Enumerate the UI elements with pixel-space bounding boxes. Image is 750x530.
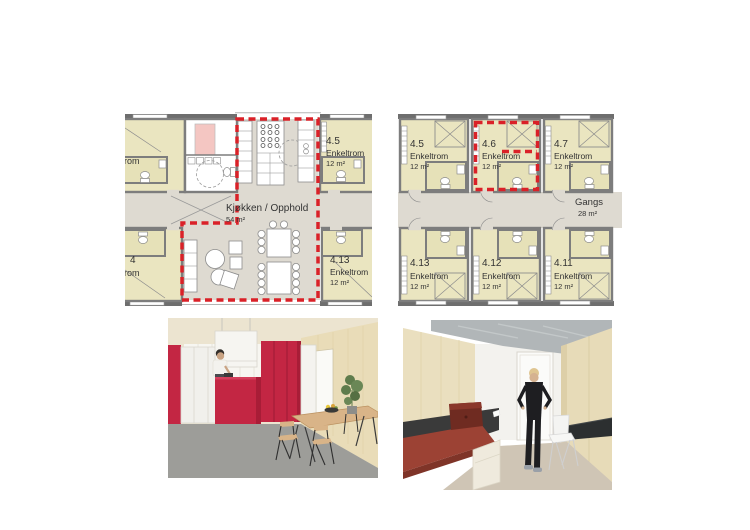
room-type: Enkeltrom <box>330 267 368 277</box>
shower-zone <box>195 124 215 155</box>
corridor-area: 28 m² <box>578 209 598 218</box>
coffee-table <box>206 250 225 269</box>
room-type: Enkeltrom <box>410 271 448 281</box>
rendering-bedroom <box>403 318 612 490</box>
room-type: Enkeltrom <box>410 151 448 161</box>
dining-table <box>267 229 291 257</box>
dining-table <box>267 262 291 294</box>
floor-plan-kitchen-level: Enkeltrom 4.5 Enkeltrom 12 m² Kjøkken / … <box>125 112 372 308</box>
red-cabinet-tall <box>261 341 301 422</box>
floor-plan-rooms-svg: 4.5 Enkeltrom 12 m² 4.6 Enkeltrom 12 m² … <box>398 112 625 308</box>
room-number: 4.5 <box>326 136 340 147</box>
room-area: 12 m² <box>410 282 430 291</box>
room-label-partial: Enkeltrom <box>125 268 140 278</box>
room-label-partial: Enkeltrom <box>125 156 140 166</box>
presentation-sheet: Enkeltrom 4.5 Enkeltrom 12 m² Kjøkken / … <box>0 0 750 530</box>
kitchen-fixtures <box>238 120 314 185</box>
room-type: Enkeltrom <box>482 151 520 161</box>
room-type: Enkeltrom <box>554 151 592 161</box>
room-area: 12 m² <box>482 282 502 291</box>
room-type: Enkeltrom <box>554 271 592 281</box>
room-type: Enkeltrom <box>482 271 520 281</box>
floor-plan-rooms-level: 4.5 Enkeltrom 12 m² 4.6 Enkeltrom 12 m² … <box>398 112 625 308</box>
armchair <box>229 241 242 254</box>
fridge <box>301 345 316 422</box>
red-cabinet-left <box>168 345 181 424</box>
room-area: 12 m² <box>330 278 350 287</box>
room-number: 4.5 <box>410 139 424 150</box>
room-number: 4.11 <box>554 258 573 269</box>
room-number: 4.13 <box>330 255 350 266</box>
room-number: 4.13 <box>410 258 430 269</box>
common-room-label: Kjøkken / Opphold <box>226 203 308 214</box>
rooms-bottom-row <box>400 218 612 305</box>
common-room-area: 54 m² <box>226 215 246 224</box>
room-area: 12 m² <box>410 162 430 171</box>
room-type: Enkeltrom <box>326 148 364 158</box>
corridor-label: Gangs <box>575 197 603 208</box>
room-area: 12 m² <box>554 162 574 171</box>
room-number: 4.6 <box>482 139 496 150</box>
room-number: 4.12 <box>482 258 502 269</box>
accessible-bathroom <box>185 119 237 192</box>
floor-plan-kitchen-svg: Enkeltrom 4.5 Enkeltrom 12 m² Kjøkken / … <box>125 112 372 308</box>
room-number: 4.7 <box>554 139 568 150</box>
rendering-kitchen <box>168 318 378 478</box>
room-area: 12 m² <box>326 159 346 168</box>
room-number: 4 <box>130 255 136 266</box>
room-area: 12 m² <box>554 282 574 291</box>
room-area: 12 m² <box>482 162 502 171</box>
kitchen-island <box>215 373 261 424</box>
